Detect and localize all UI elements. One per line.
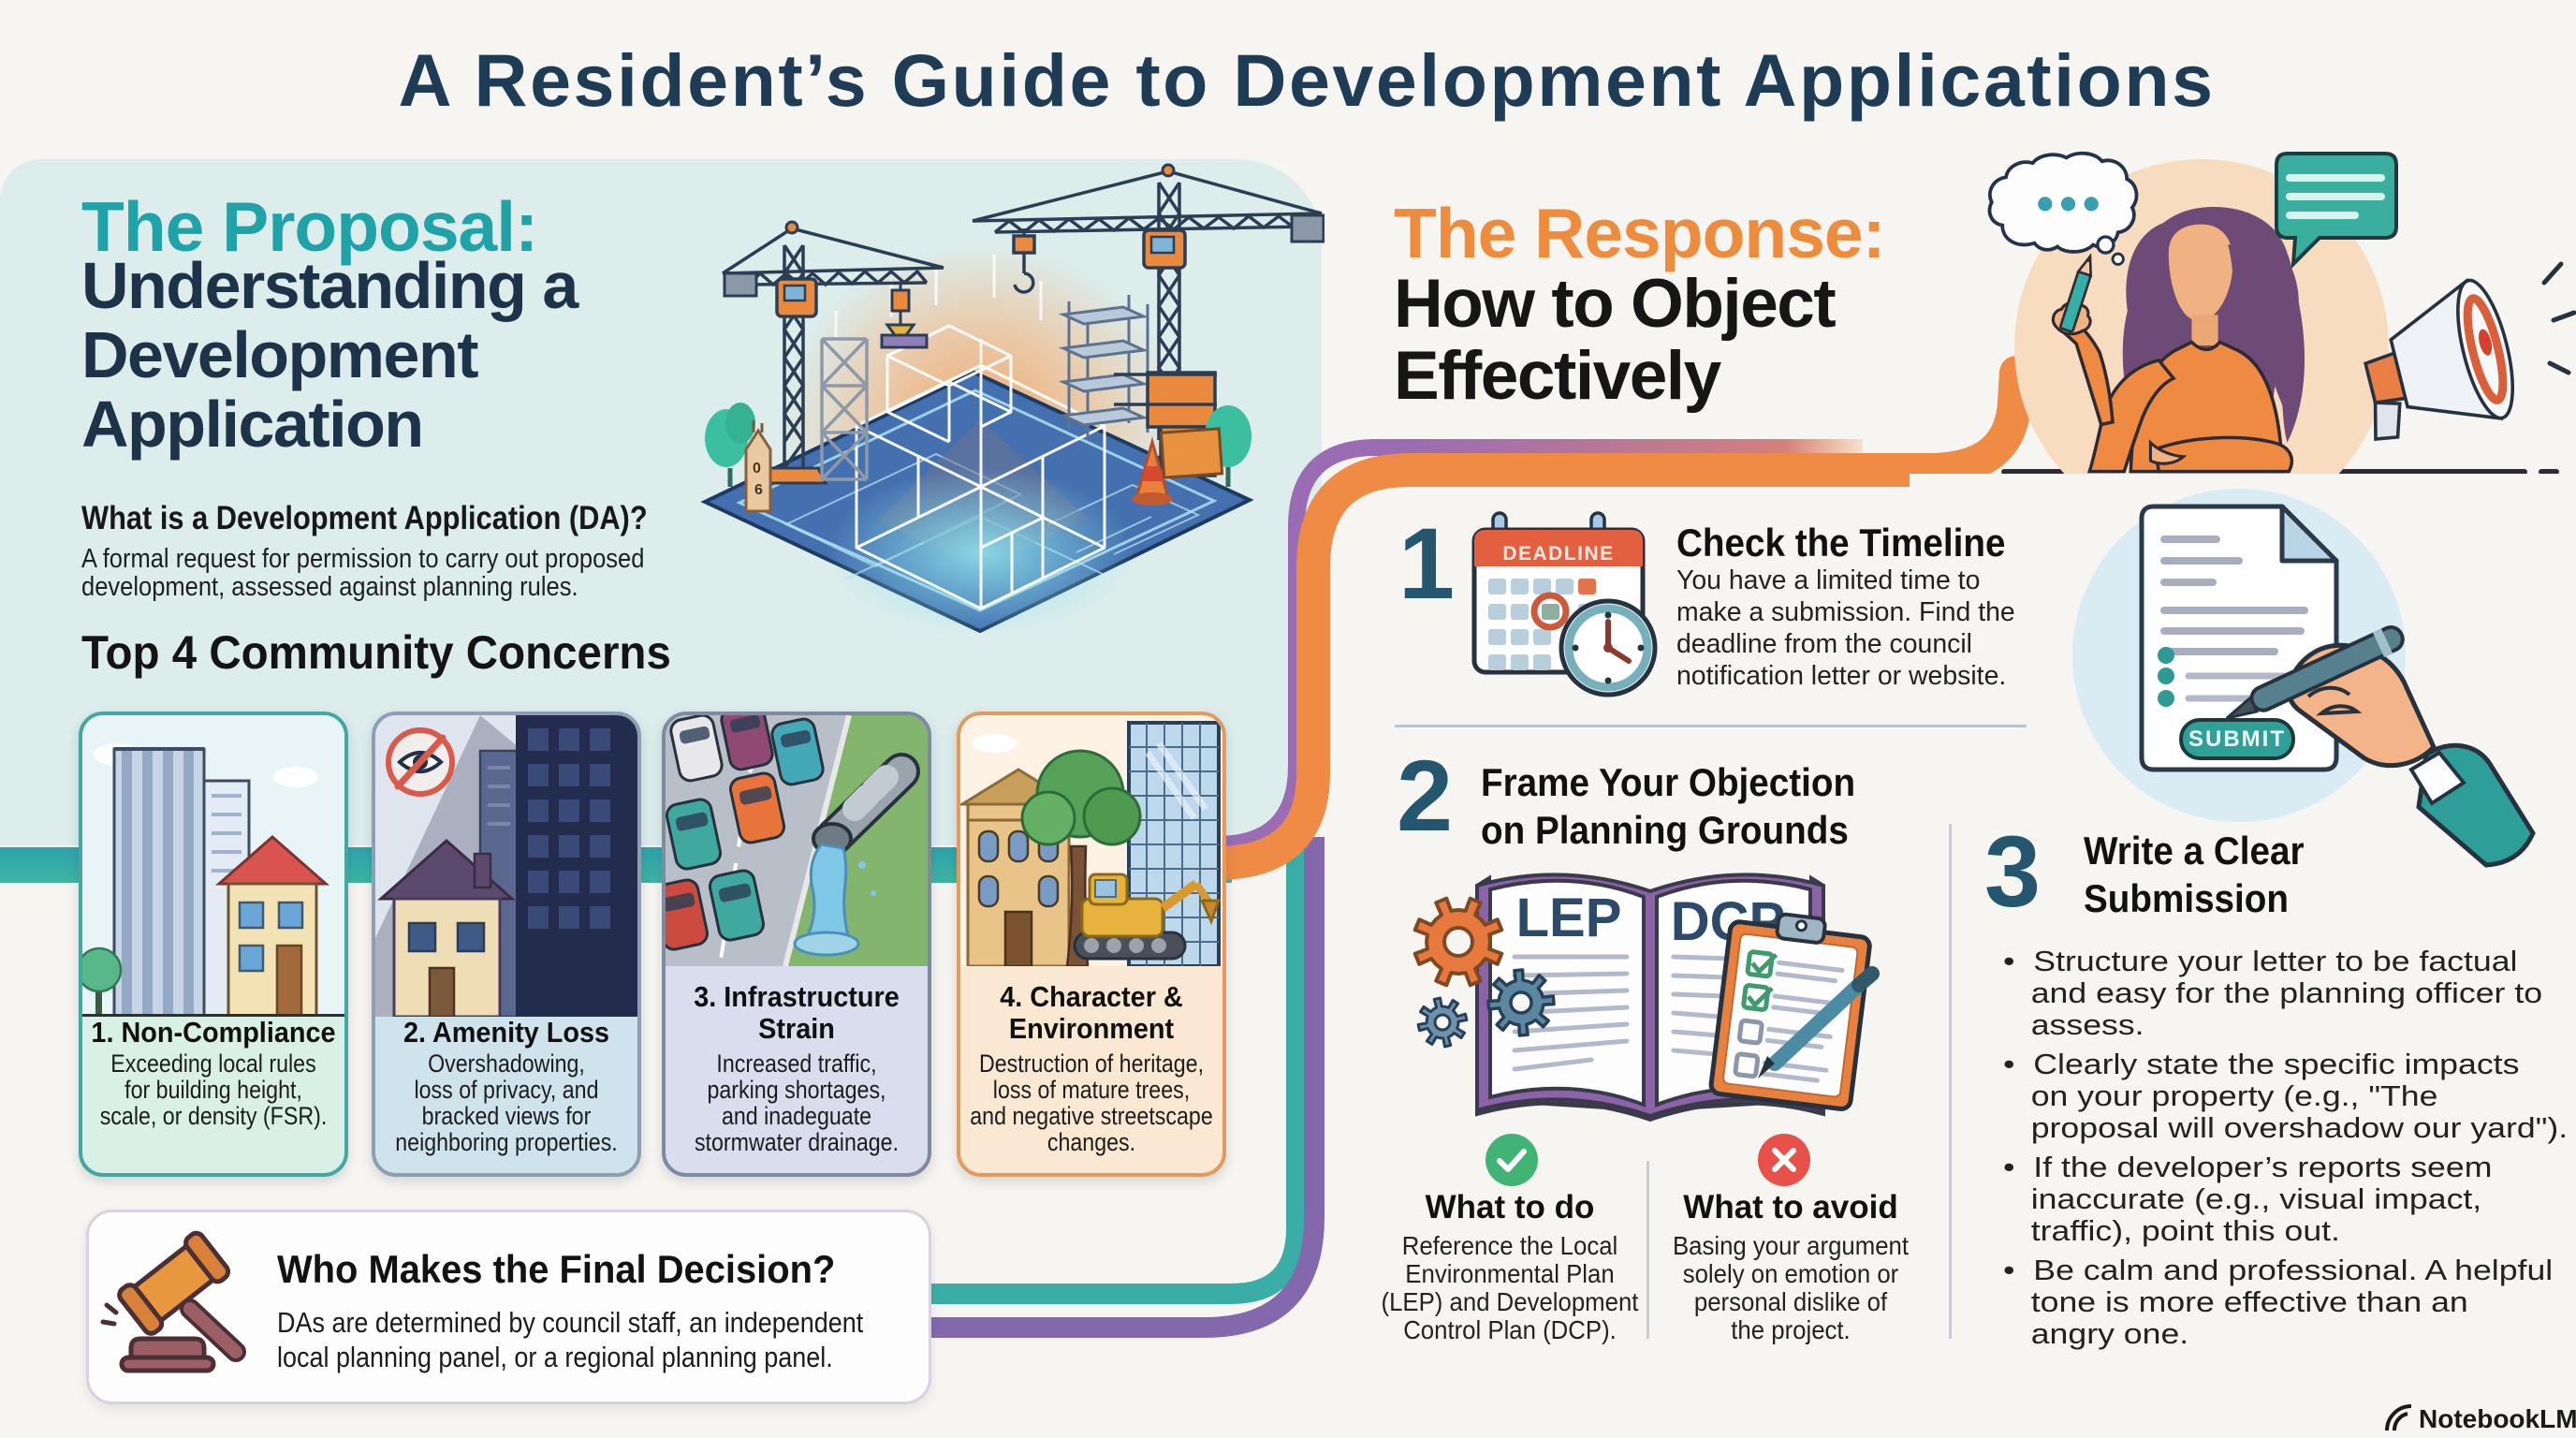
svg-text:LEP: LEP [1516,888,1622,948]
svg-text:DEADLINE: DEADLINE [1502,543,1614,565]
svg-text:0: 0 [753,461,761,477]
svg-text:6: 6 [754,482,763,498]
svg-text:SUBMIT: SUBMIT [2188,726,2286,752]
